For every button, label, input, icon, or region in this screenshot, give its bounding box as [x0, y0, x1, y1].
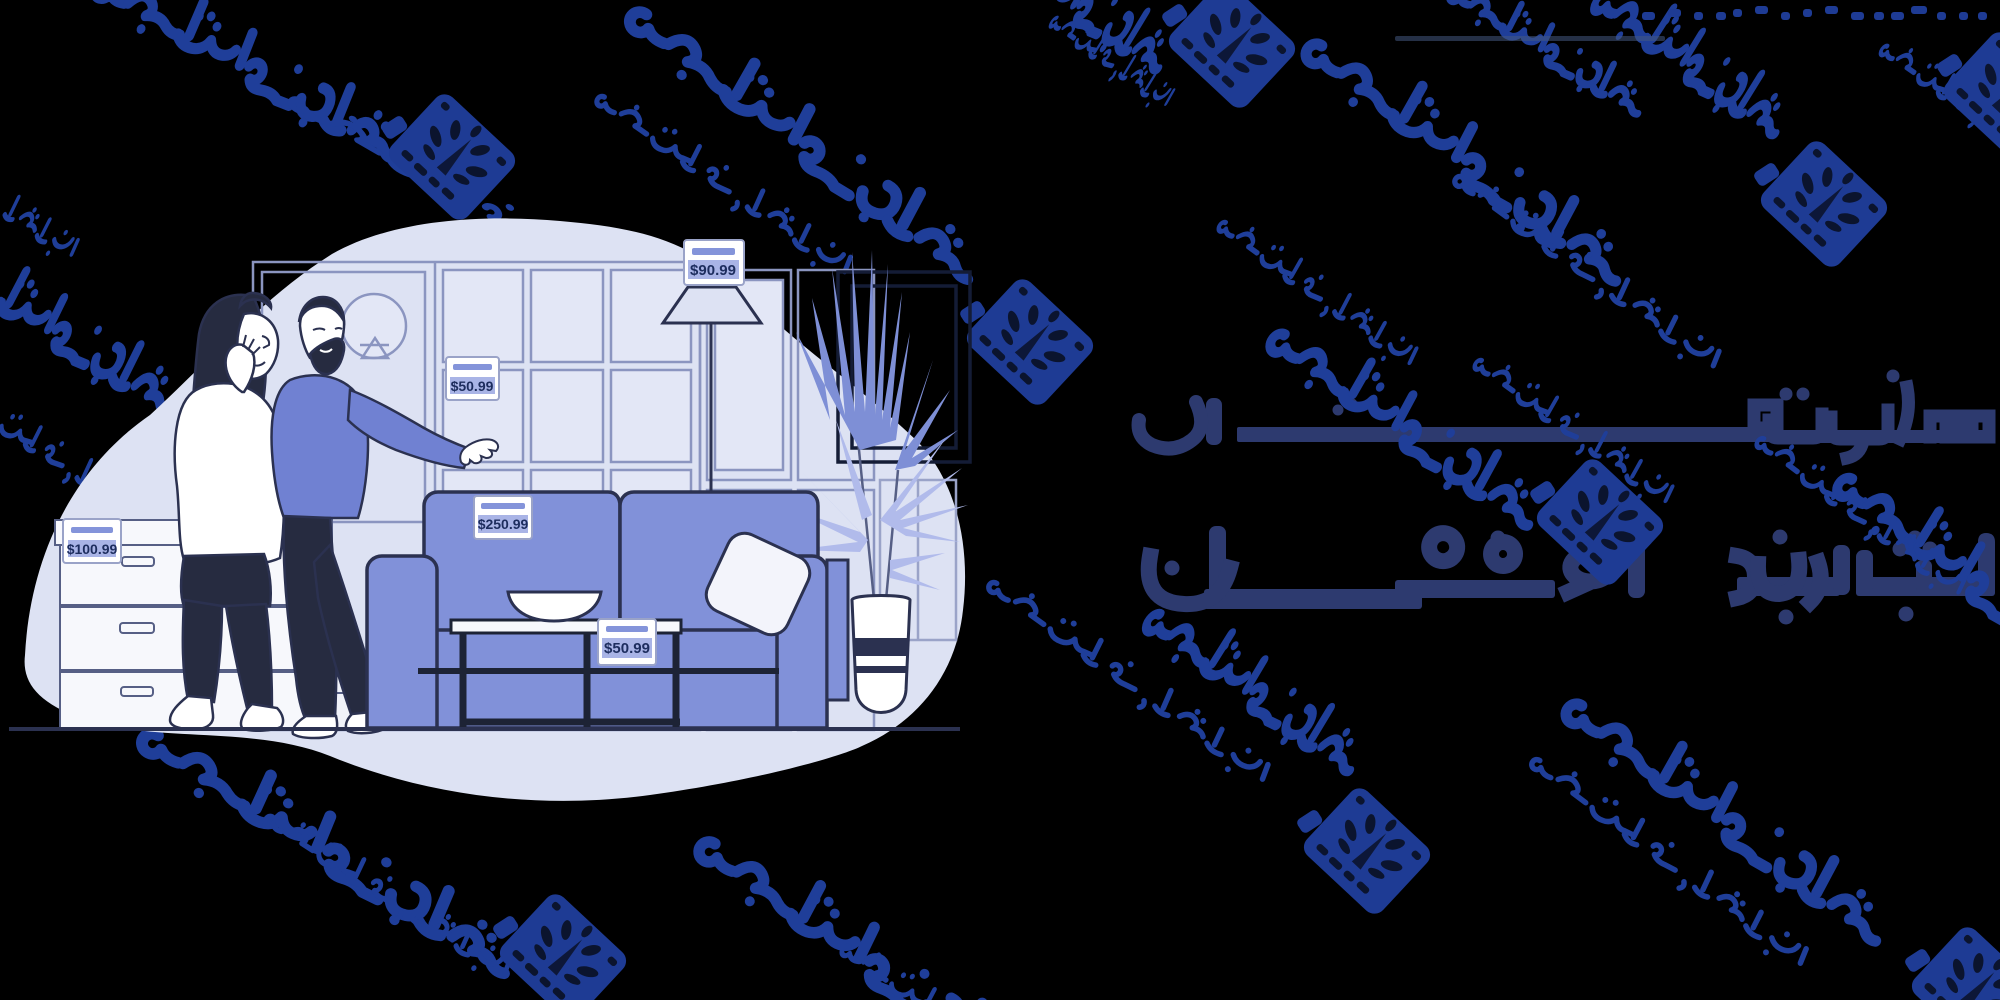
svg-text:$100.99: $100.99: [67, 541, 118, 557]
svg-text:$90.99: $90.99: [690, 262, 736, 279]
svg-text:$50.99: $50.99: [604, 640, 650, 657]
svg-text:$250.99: $250.99: [478, 516, 529, 532]
svg-text:$50.99: $50.99: [451, 378, 494, 394]
